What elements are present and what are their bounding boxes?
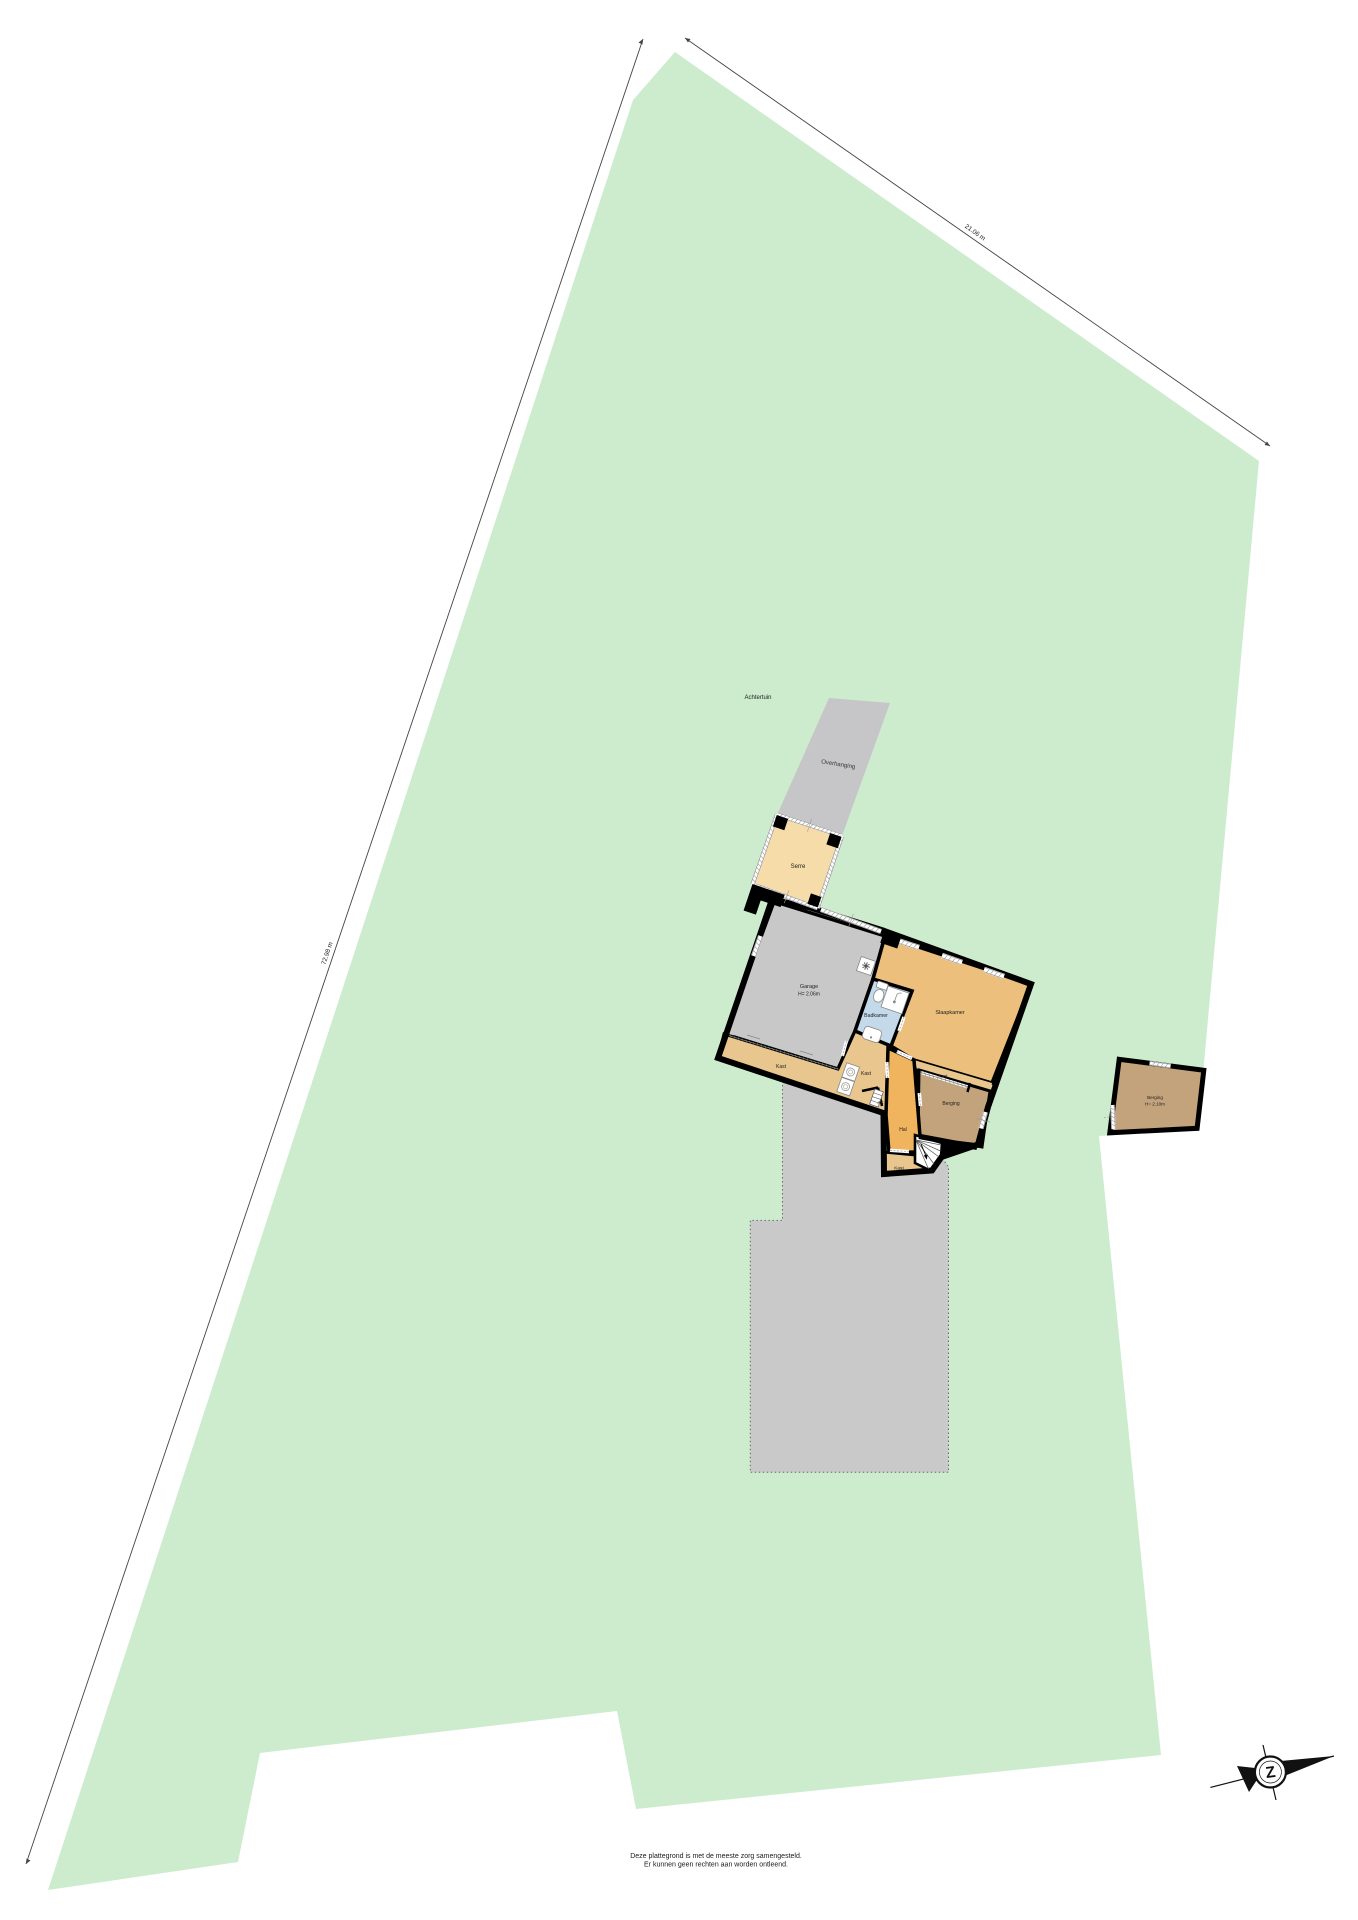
- svg-text:Kast: Kast: [938, 1074, 948, 1079]
- svg-text:Achtertuin: Achtertuin: [744, 695, 771, 701]
- svg-text:Berging: Berging: [1147, 1095, 1163, 1100]
- svg-text:Garage: Garage: [800, 984, 818, 990]
- svg-text:H= 2.10m: H= 2.10m: [1145, 1102, 1165, 1107]
- svg-text:Kast: Kast: [894, 1166, 904, 1172]
- svg-text:H= 2.06m: H= 2.06m: [798, 992, 820, 998]
- svg-text:Deze plattegrond is met de mee: Deze plattegrond is met de meeste zorg s…: [630, 1853, 802, 1860]
- svg-text:Kast: Kast: [776, 1064, 787, 1070]
- svg-text:Hal: Hal: [899, 1127, 907, 1133]
- svg-text:Berging: Berging: [942, 1101, 959, 1107]
- svg-text:Serre: Serre: [791, 864, 806, 870]
- svg-text:Slaapkamer: Slaapkamer: [935, 1010, 965, 1016]
- svg-text:Er kunnen geen rechten aan wor: Er kunnen geen rechten aan worden ontlee…: [644, 1862, 788, 1869]
- svg-text:AK: AK: [877, 1100, 883, 1105]
- svg-text:Badkamer: Badkamer: [864, 1013, 888, 1019]
- svg-text:Kast: Kast: [861, 1071, 872, 1077]
